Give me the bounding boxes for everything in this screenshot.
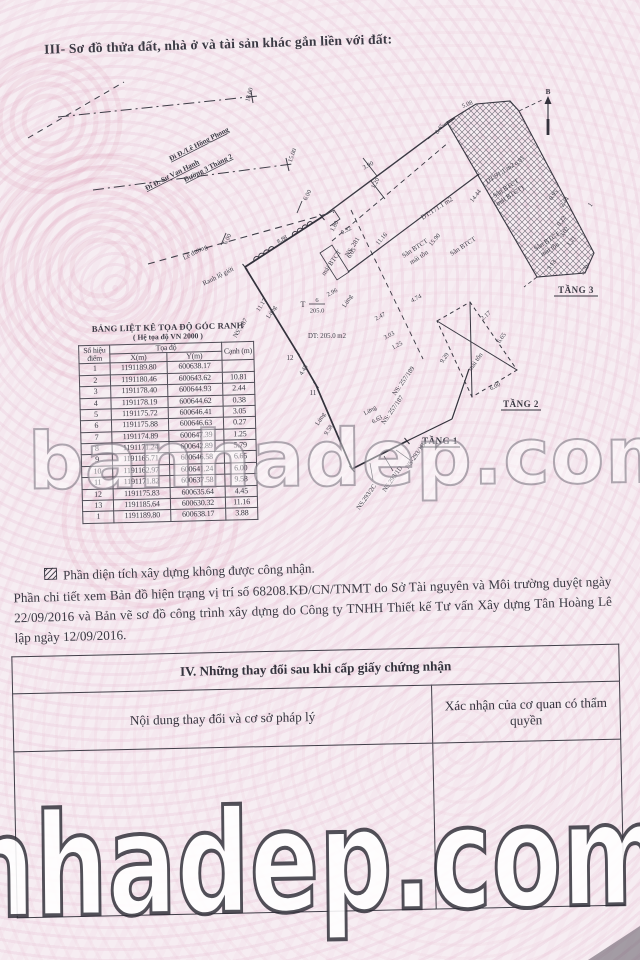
coordinate-table-block: BẢNG LIỆT KÊ TỌA ĐỘ GÓC RANH ( Hệ tọa độ… — [78, 320, 263, 524]
thua-prefix: T — [301, 300, 306, 309]
section4-body-right — [433, 739, 625, 909]
floor-labels: TẦNG 1 TẦNG 2 TẦNG 3 — [420, 285, 598, 447]
dim-label: 11.16 — [375, 231, 389, 246]
parcel-number: T 6 205.0 — [301, 297, 325, 315]
dim-label: 1.80 — [329, 220, 340, 233]
tang2-outline — [437, 302, 517, 397]
coord-cell: 2 — [79, 375, 111, 387]
col-header-edge: Cạnh (m) — [222, 341, 254, 360]
coord-cell: 5.79 — [224, 439, 256, 451]
dim-label: 2.47 — [374, 311, 387, 322]
coord-cell: 11 — [82, 477, 114, 489]
dim-label: 9.29 — [439, 352, 451, 365]
tang3-label: TẦNG 3 — [558, 285, 594, 295]
house-number-labels: NS. 287 NS. 281 NS: 257/189 NS: 257/187 … — [232, 236, 428, 511]
coord-cell: 6.00 — [225, 462, 257, 474]
coord-cell: 1191189.80 — [114, 510, 170, 523]
dim-label: 14.44 — [469, 188, 484, 204]
coord-cell: 600638.17 — [170, 509, 226, 522]
ns-257-189: NS: 257/189 — [391, 365, 416, 397]
left-boundary — [245, 267, 352, 469]
section4-table: IV. Những thay đổi sau khi cấp giấy chứn… — [11, 644, 624, 919]
dim-label: 4.74 — [410, 293, 424, 305]
coord-cell: 6.65 — [225, 451, 257, 463]
north-arrow: B — [545, 88, 552, 135]
thua-area: 205.0 — [310, 308, 325, 315]
coordinate-table-body: 11191189.80600638.1721191180.46600643.62… — [79, 360, 258, 524]
col-header-point: Số hiệu điểm — [79, 345, 111, 364]
coord-cell: 5 — [80, 409, 112, 421]
section4-block: IV. Những thay đổi sau khi cấp giấy chứn… — [11, 644, 624, 919]
point-11: 11 — [310, 389, 317, 397]
parcel-area-label: DT: 205.0 m2 — [308, 333, 347, 340]
north-arrow-head — [545, 96, 552, 104]
coord-cell: 3.88 — [226, 508, 258, 520]
coord-cell: 13 — [82, 500, 114, 512]
right-rear-boundary — [407, 369, 469, 441]
mai-btct-strip: mái BTCT — [321, 248, 344, 277]
point-12: 12 — [287, 354, 295, 362]
tang2-roof-plan — [437, 302, 517, 397]
dim-label: 0.52 — [340, 225, 353, 236]
coord-cell: 0.38 — [223, 394, 255, 406]
coord-cell: 1 — [79, 363, 111, 375]
dim-label: 6.65 — [496, 332, 508, 345]
section4-col-left: Nội dung thay đổi và cơ sở pháp lý — [13, 685, 433, 752]
dim-label: 15.00 — [287, 148, 298, 164]
coord-cell: 2.44 — [223, 383, 255, 395]
dim-label: 11.17 — [255, 297, 268, 313]
dim-label: 3.03 — [383, 330, 396, 341]
coord-cell: 1 — [83, 511, 115, 523]
dim-label: 18.00 — [244, 87, 254, 103]
coord-cell: 10 — [82, 466, 114, 478]
section4-body-left — [14, 743, 436, 918]
coord-cell: 3.05 — [223, 405, 255, 417]
ns-293-1d: NS.293/1D — [381, 465, 404, 494]
coord-cell: 6 — [80, 420, 112, 432]
dim-label: 3.90 — [362, 160, 375, 171]
coord-cell: 12 — [82, 489, 114, 501]
coord-cell: 0.27 — [224, 417, 256, 429]
coord-cell — [222, 360, 254, 372]
road-width-tick-b — [297, 201, 302, 213]
dim-label: 15.90 — [428, 232, 442, 247]
ns-257-187: NS: 257/187 — [380, 394, 405, 426]
coord-cell: 4 — [80, 397, 112, 409]
point-1-right: 1 — [586, 201, 595, 209]
coord-cell: 10.81 — [223, 371, 255, 383]
tang1-label: TẦNG 1 — [422, 436, 458, 446]
dt171-label: DT:171.1 m2 — [420, 196, 455, 222]
house-footprint — [320, 118, 479, 359]
scanned-land-certificate-page: { "page_title": "III- Sơ đồ thửa đất, nh… — [0, 0, 640, 960]
coordinate-table: Số hiệu điểm Tọa độ Cạnh (m) X(m) Y(m) 1… — [78, 341, 258, 524]
ranh-lo-gioi-label: Ranh lộ giới — [202, 266, 235, 288]
dim-label: 6.00 — [302, 189, 313, 202]
tang2-diagonals — [437, 302, 517, 397]
hatched-area-icon — [44, 568, 57, 584]
coord-cell: 7 — [81, 432, 113, 444]
coord-cell: 11.16 — [226, 496, 258, 508]
photo-corner-shadow — [588, 926, 640, 960]
rear-boundary — [352, 441, 407, 469]
north-label: B — [546, 88, 551, 96]
tang2-label: TẦNG 2 — [503, 399, 539, 409]
dim-label: 2.96 — [326, 287, 339, 298]
section4-col-right: Xác nhận của cơ quan có thẩm quyền — [431, 681, 620, 743]
coord-cell: 9 — [81, 454, 113, 466]
lung-label: Lửng — [341, 293, 355, 309]
lung-label: Lửng — [314, 411, 328, 427]
thua-number: 6 — [315, 297, 319, 304]
coord-cell: 3 — [80, 386, 112, 398]
dim-label: 1.25 — [391, 340, 404, 351]
ns-293-2c: NS.293/2C — [355, 483, 378, 512]
coord-cell: 1.25 — [224, 428, 256, 440]
dim-label: 2.17 — [480, 310, 493, 322]
dim-label: 6.00 — [222, 233, 233, 246]
coord-cell: 8 — [81, 443, 113, 455]
san-btct-b: Sân BTCT — [449, 235, 478, 257]
mai-ton-t2: mái tôn — [467, 351, 485, 372]
dim-label: 1.20 — [370, 177, 381, 190]
coord-cell: 4.45 — [225, 485, 257, 497]
dim-label: 6.00 — [489, 381, 502, 392]
road-centerline-1 — [58, 96, 258, 117]
coord-cell: 9.58 — [225, 474, 257, 486]
dim-label: 4.45 — [298, 364, 310, 377]
